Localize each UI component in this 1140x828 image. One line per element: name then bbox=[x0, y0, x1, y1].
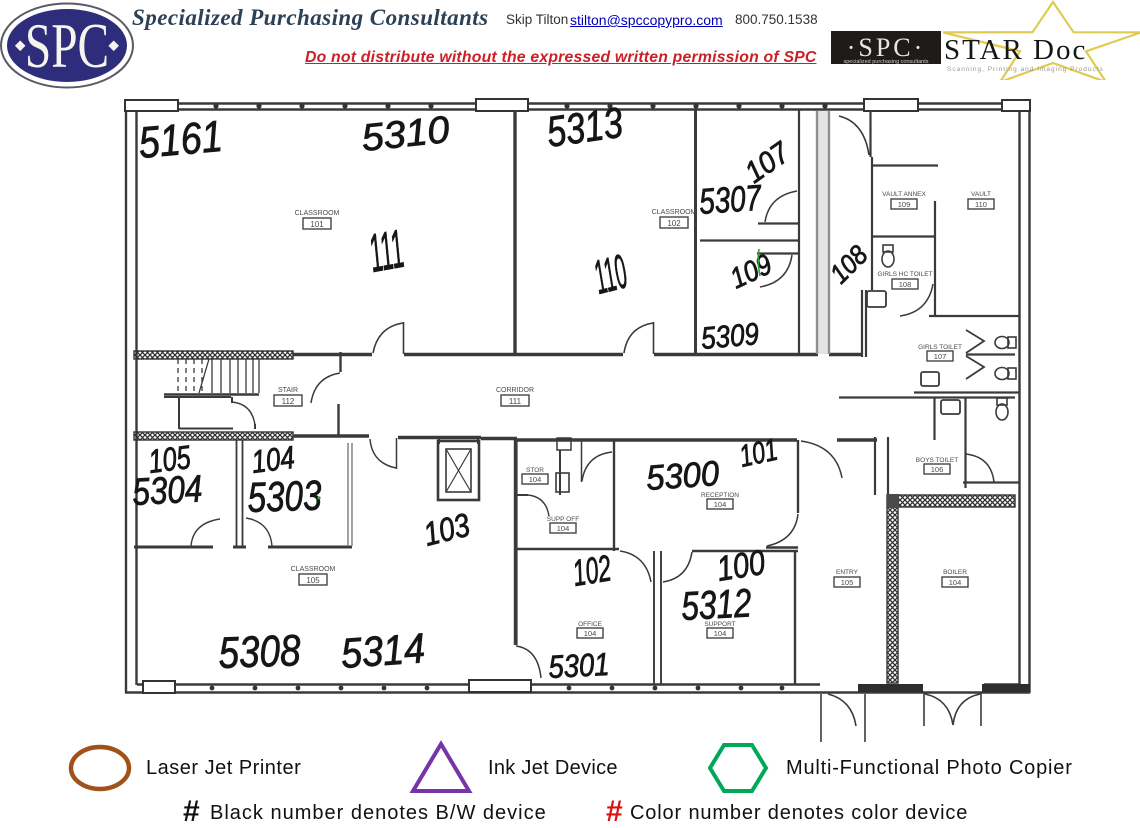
svg-text:CLASSROOM: CLASSROOM bbox=[295, 210, 340, 217]
svg-text:101: 101 bbox=[736, 431, 781, 473]
svg-text:5314: 5314 bbox=[339, 625, 426, 677]
svg-text:102: 102 bbox=[570, 547, 614, 595]
svg-text:110: 110 bbox=[975, 200, 987, 209]
svg-text:102: 102 bbox=[667, 219, 681, 228]
svg-text:GIRLS HC TOILET: GIRLS HC TOILET bbox=[877, 271, 932, 278]
svg-text:5304: 5304 bbox=[131, 468, 203, 514]
svg-text:5300: 5300 bbox=[645, 454, 721, 498]
svg-text:5308: 5308 bbox=[218, 625, 302, 678]
svg-text:104: 104 bbox=[529, 475, 542, 484]
svg-text:STOR: STOR bbox=[526, 467, 544, 474]
svg-text:103: 103 bbox=[420, 506, 474, 553]
svg-text:SUPP OFF: SUPP OFF bbox=[547, 516, 579, 523]
svg-text:CLASSROOM: CLASSROOM bbox=[291, 566, 336, 573]
svg-text:104: 104 bbox=[584, 629, 597, 638]
svg-text:106: 106 bbox=[931, 465, 944, 474]
svg-text:108: 108 bbox=[899, 280, 912, 289]
svg-text:107: 107 bbox=[934, 352, 947, 361]
svg-text:105: 105 bbox=[306, 576, 320, 585]
svg-text:BOILER: BOILER bbox=[943, 569, 967, 576]
svg-text:BOYS TOILET: BOYS TOILET bbox=[916, 457, 958, 464]
svg-text:111: 111 bbox=[365, 218, 409, 283]
svg-text:104: 104 bbox=[557, 524, 570, 533]
svg-text:ENTRY: ENTRY bbox=[836, 569, 859, 576]
svg-text:GIRLS TOILET: GIRLS TOILET bbox=[918, 344, 962, 351]
svg-text:109: 109 bbox=[898, 200, 911, 209]
svg-text:5310: 5310 bbox=[360, 109, 452, 160]
svg-text:VAULT ANNEX: VAULT ANNEX bbox=[882, 191, 926, 198]
svg-text:112: 112 bbox=[282, 397, 295, 406]
svg-text:104: 104 bbox=[714, 500, 727, 509]
svg-text:5309: 5309 bbox=[700, 317, 761, 357]
svg-text:104: 104 bbox=[714, 629, 727, 638]
svg-text:105: 105 bbox=[841, 578, 854, 587]
svg-text:110: 110 bbox=[589, 244, 633, 304]
svg-text:CLASSROOM: CLASSROOM bbox=[652, 209, 697, 216]
svg-text:101: 101 bbox=[310, 220, 324, 229]
svg-text:5307: 5307 bbox=[698, 177, 764, 222]
svg-text:104: 104 bbox=[949, 578, 962, 587]
svg-text:5313: 5313 bbox=[544, 99, 626, 157]
svg-text:5161: 5161 bbox=[137, 111, 225, 168]
svg-text:OFFICE: OFFICE bbox=[578, 621, 602, 628]
svg-text:VAULT: VAULT bbox=[971, 191, 991, 198]
svg-text:5303: 5303 bbox=[247, 473, 323, 522]
svg-text:108: 108 bbox=[825, 240, 875, 290]
svg-text:CORRIDOR: CORRIDOR bbox=[496, 387, 534, 394]
svg-text:111: 111 bbox=[509, 397, 522, 406]
svg-text:5301: 5301 bbox=[548, 647, 611, 686]
svg-text:STAIR: STAIR bbox=[278, 387, 298, 394]
svg-text:5312: 5312 bbox=[680, 580, 752, 629]
